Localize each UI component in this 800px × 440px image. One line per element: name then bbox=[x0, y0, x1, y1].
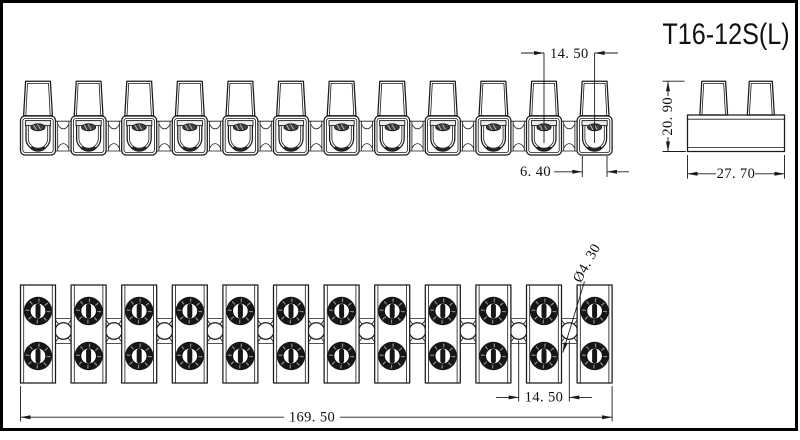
terminal-unit bbox=[71, 81, 106, 155]
dim-front-pitch-label: 14. 50 bbox=[550, 46, 589, 62]
side-view bbox=[688, 81, 785, 151]
link-plan bbox=[257, 319, 274, 344]
link-front bbox=[56, 121, 72, 151]
link-plan bbox=[156, 319, 173, 344]
terminal-unit bbox=[324, 81, 359, 155]
link-front bbox=[207, 121, 223, 151]
terminal-segment bbox=[476, 285, 511, 383]
dim-plan-total-label: 169. 50 bbox=[289, 410, 335, 426]
terminal-unit bbox=[375, 81, 410, 155]
link-front bbox=[511, 121, 527, 151]
dim-side-depth: 27. 70 bbox=[688, 155, 785, 182]
link-front bbox=[410, 121, 426, 151]
link-plan bbox=[409, 319, 426, 344]
terminal-unit bbox=[425, 81, 460, 155]
link-plan bbox=[510, 319, 527, 344]
link-plan bbox=[460, 319, 477, 344]
dim-hole-diameter-label: Ø4. 30 bbox=[570, 241, 604, 285]
side-tower bbox=[700, 81, 728, 115]
link-front bbox=[562, 121, 578, 151]
link-front bbox=[359, 121, 375, 151]
link-front bbox=[106, 121, 122, 151]
part-number-label: T16-12S(L) bbox=[662, 17, 789, 51]
terminal-unit bbox=[21, 81, 56, 155]
dim-side-depth-label: 27. 70 bbox=[717, 166, 756, 182]
link-plan bbox=[207, 319, 224, 344]
terminal-unit bbox=[122, 81, 157, 155]
terminal-unit bbox=[476, 81, 511, 155]
side-body bbox=[688, 115, 785, 152]
terminal-segment bbox=[71, 285, 106, 383]
link-plan bbox=[106, 319, 123, 344]
terminal-segment bbox=[223, 285, 258, 383]
link-front bbox=[460, 121, 476, 151]
terminal-segment bbox=[21, 285, 56, 383]
terminal-unit bbox=[223, 81, 258, 155]
link-plan bbox=[359, 319, 376, 344]
terminal-segment bbox=[324, 285, 359, 383]
terminal-segment bbox=[577, 285, 612, 383]
link-plan bbox=[55, 319, 72, 344]
terminal-segment bbox=[274, 285, 309, 383]
dim-side-height: 20. 90 bbox=[660, 81, 686, 151]
link-front bbox=[258, 121, 274, 151]
terminal-unit bbox=[172, 81, 207, 155]
terminal-segment bbox=[172, 285, 207, 383]
terminal-segment bbox=[425, 285, 460, 383]
link-plan bbox=[308, 319, 325, 344]
terminal-segment bbox=[527, 285, 562, 383]
engineering-drawing: 14. 50 6. 40 20. 90 27. 70 169. 50 bbox=[0, 0, 800, 440]
dim-plan-pitch-label: 14. 50 bbox=[525, 390, 564, 406]
front-view bbox=[21, 81, 613, 155]
dim-front-end: 6. 40 bbox=[520, 156, 629, 180]
dim-side-height-label: 20. 90 bbox=[660, 97, 676, 136]
dim-plan-total: 169. 50 bbox=[21, 386, 613, 426]
terminal-segment bbox=[122, 285, 157, 383]
terminal-unit bbox=[274, 81, 309, 155]
dim-front-end-label: 6. 40 bbox=[520, 164, 551, 180]
link-front bbox=[157, 121, 173, 151]
terminal-segment bbox=[375, 285, 410, 383]
drawing-sheet: 14. 50 6. 40 20. 90 27. 70 169. 50 bbox=[0, 0, 800, 440]
plan-view bbox=[21, 285, 613, 383]
link-front bbox=[309, 121, 325, 151]
